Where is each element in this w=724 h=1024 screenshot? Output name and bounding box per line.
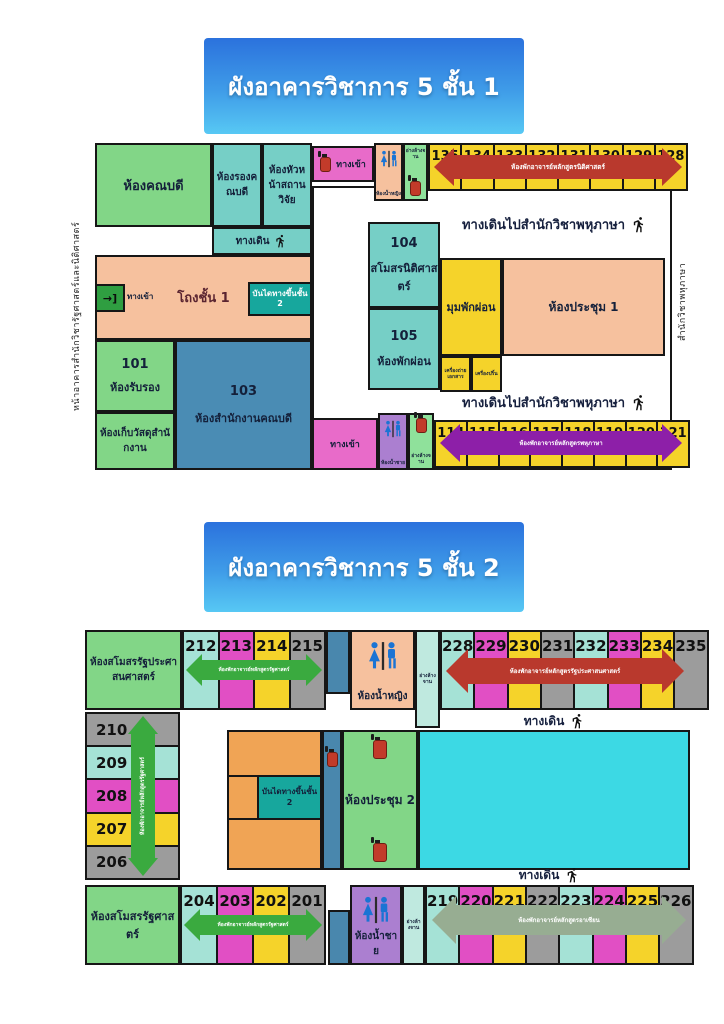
room-storage: ห้องเก็บวัสดุสำนักงาน xyxy=(95,412,175,470)
hall-label: โถงชั้น 1 xyxy=(177,287,229,308)
sink-bottom-label: อ่างล้างจาน xyxy=(410,453,432,466)
room-104: 104 สโมสรนิติศาสตร์ xyxy=(368,222,440,308)
floor2-walk-note-top: ทางเดิน xyxy=(500,712,610,730)
room-105: 105 ห้องพักผ่อน xyxy=(368,308,440,390)
restroom-icon xyxy=(383,419,403,439)
corridor-note-top: ทางเดินไปสำนักวิชาพหุภาษา xyxy=(425,214,685,234)
blue-strip-floor2 xyxy=(322,730,342,870)
toilet-women-floor2-label: ห้องน้ำหญิง xyxy=(358,689,408,704)
toilet-women-label: ห้องน้ำหญิง xyxy=(376,191,401,197)
fire-extinguisher-icon xyxy=(373,843,387,862)
sink-top-label: อ่างล้างจาน xyxy=(405,148,426,161)
room-copier: เครื่องถ่ายเอกสาร xyxy=(440,356,471,392)
walking-person-icon xyxy=(565,867,581,883)
walkway-strip: ทางเดิน xyxy=(212,227,312,255)
hall-entrance-box: →] xyxy=(95,284,125,312)
fire-extinguisher-icon xyxy=(416,418,427,433)
room-research-head-label: ห้องหัวหน้าสถานวิจัย xyxy=(266,163,308,208)
arrow-right-head xyxy=(662,424,682,462)
sink-floor2-top: อ่างล้างจาน xyxy=(415,630,440,728)
arrow-asean-lecturers: ห้องพักอาจารย์หลักสูตรอาเซียน xyxy=(432,905,686,935)
room-105-number: 105 xyxy=(390,329,417,344)
copier-label: เครื่องถ่ายเอกสาร xyxy=(444,368,467,381)
room-club-public-admin: ห้องสโมสรรัฐประศาสนศาสตร์ xyxy=(85,630,182,710)
room-101: 101 ห้องรับรอง xyxy=(95,340,175,412)
arrow-right-head xyxy=(662,896,686,944)
restroom-icon xyxy=(360,895,392,925)
entrance-arrow-icon: →] xyxy=(103,292,117,305)
room-research-head: ห้องหัวหน้าสถานวิจัย xyxy=(262,143,312,227)
arrow-left-head xyxy=(446,649,468,693)
room-number: 207 xyxy=(96,820,127,838)
toilet-men-floor2: ห้องน้ำชาย xyxy=(350,885,402,965)
room-number: 208 xyxy=(96,787,127,805)
room-number: 209 xyxy=(96,754,127,772)
arrow-down-head xyxy=(128,858,158,876)
room-storage-label: ห้องเก็บวัสดุสำนักงาน xyxy=(99,426,171,456)
room-deputy-dean-label: ห้องรองคณบดี xyxy=(216,170,258,200)
arrow-left-head xyxy=(186,654,202,686)
corridor-note-bottom-text: ทางเดินไปสำนักวิชาพหุภาษา xyxy=(462,392,625,413)
arrow-public-admin-label: ห้องพักอาจารย์หลักสูตรรัฐประศาสนศาสตร์ xyxy=(510,666,620,676)
floor1-right-edge-label: สำนักวิชาพหุภาษา xyxy=(676,238,690,366)
room-103: 103 ห้องสำนักงานคณบดี xyxy=(175,340,312,470)
arrow-law-lecturers-label: ห้องพักอาจารย์หลักสูตรนิติศาสตร์ xyxy=(511,162,605,172)
walking-person-icon xyxy=(570,713,586,729)
room-printer: เครื่องปริ้น xyxy=(471,356,502,392)
rest-corner-label: มุมพักผ่อน xyxy=(447,298,496,316)
arrow-polsci-lecturers-top: ห้องพักอาจารย์หลักสูตรรัฐศาสตร์ xyxy=(186,660,322,680)
toilet-men-floor2-label: ห้องน้ำชาย xyxy=(352,929,400,959)
room-dean-label: ห้องคณบดี xyxy=(123,175,183,196)
arrow-law-lecturers: ห้องพักอาจารย์หลักสูตรนิติศาสตร์ xyxy=(434,155,682,179)
arrow-right-head xyxy=(662,148,682,186)
sink-top: อ่างล้างจาน xyxy=(403,143,428,201)
toilet-men-label: ห้องน้ำชาย xyxy=(381,460,405,466)
floor2-walk-note-bottom: ทางเดิน xyxy=(495,866,605,884)
room-101-number: 101 xyxy=(121,357,148,372)
floor2-walk-note-bottom-text: ทางเดิน xyxy=(519,866,560,885)
walkway-label: ทางเดิน xyxy=(236,234,270,249)
arrow-right-head xyxy=(306,654,322,686)
club-public-admin-label: ห้องสโมสรรัฐประศาสนศาสตร์ xyxy=(90,655,177,685)
arrow-public-admin-lecturers: ห้องพักอาจารย์หลักสูตรรัฐประศาสนศาสตร์ xyxy=(446,658,684,684)
room-103-number: 103 xyxy=(230,384,257,399)
room-deputy-dean: ห้องรองคณบดี xyxy=(212,143,262,227)
entrance-bottom: ทางเข้า xyxy=(312,418,378,470)
meeting-2-label: ห้องประชุม 2 xyxy=(345,791,415,810)
corridor-note-bottom: ทางเดินไปสำนักวิชาพหุภาษา xyxy=(430,392,680,412)
walking-person-icon xyxy=(631,216,648,233)
fire-extinguisher-icon xyxy=(410,181,421,196)
entrance-top-label: ทางเข้า xyxy=(336,157,366,171)
printer-label: เครื่องปริ้น xyxy=(475,371,497,377)
corridor-note-top-text: ทางเดินไปสำนักวิชาพหุภาษา xyxy=(462,214,625,235)
fire-extinguisher-icon xyxy=(373,740,387,759)
arrow-polsci-lecturers-vertical: ห้องพักอาจารย์หลักสูตรรัฐศาสตร์ xyxy=(131,716,155,876)
arrow-left-head xyxy=(440,424,460,462)
arrow-multilingual-lecturers: ห้องพักอาจารย์หลักสูตรพหุภาษา xyxy=(440,431,682,455)
room-number: 210 xyxy=(96,721,127,739)
room-104-number: 104 xyxy=(390,236,417,251)
stairs-label-floor2: บันไดทางขึ้นชั้น2 xyxy=(260,787,319,808)
blue-box-bottom xyxy=(328,910,350,965)
floor-plan-page: ผังอาคารวิชาการ 5 ชั้น 1 หน้าอาคารสำนักว… xyxy=(0,0,724,1024)
floor1-left-edge-label: หน้าอาคารสำนักวิชารัฐศาสตร์และนิติศาสตร์ xyxy=(70,180,86,452)
open-area-floor2 xyxy=(418,730,690,870)
room-number: 206 xyxy=(96,853,127,871)
room-meeting-2: ห้องประชุม 2 xyxy=(342,730,418,870)
room-rest-corner: มุมพักผ่อน xyxy=(440,258,502,356)
floor2-walk-note-top-text: ทางเดิน xyxy=(524,712,565,731)
fire-extinguisher-icon xyxy=(320,157,331,172)
arrow-multilingual-label: ห้องพักอาจารย์หลักสูตรพหุภาษา xyxy=(519,438,602,448)
stairs-label-floor1: บันไดทางขึ้นชั้น2 xyxy=(251,289,309,310)
floor2-title-banner: ผังอาคารวิชาการ 5 ชั้น 2 xyxy=(204,522,524,612)
restroom-icon xyxy=(366,640,400,672)
room-dean: ห้องคณบดี xyxy=(95,143,212,227)
toilet-men-floor1: ห้องน้ำชาย xyxy=(378,413,408,470)
arrow-up-head xyxy=(128,716,158,734)
restroom-icon xyxy=(379,149,399,169)
arrow-polsci-bottom-label: ห้องพักอาจารย์หลักสูตรรัฐศาสตร์ xyxy=(217,921,288,929)
sink-bottom: อ่างล้างจาน xyxy=(408,413,434,470)
hall-entrance-label: ทางเข้า xyxy=(127,292,153,302)
room-103-label: ห้องสำนักงานคณบดี xyxy=(195,409,292,427)
arrow-polsci-top-label: ห้องพักอาจารย์หลักสูตรรัฐศาสตร์ xyxy=(218,666,289,674)
room-stairs-floor2: บันไดทางขึ้นชั้น2 xyxy=(257,775,322,820)
room-105-label: ห้องพักผ่อน xyxy=(377,352,431,370)
arrow-asean-label: ห้องพักอาจารย์หลักสูตรอาเซียน xyxy=(518,915,599,925)
sink-floor2-bottom-label: อ่างล้างจาน xyxy=(406,919,421,932)
room-104-label: สโมสรนิติศาสตร์ xyxy=(370,259,438,295)
sink-floor2-bottom: อ่างล้างจาน xyxy=(402,885,425,965)
arrow-polsci-vertical-label: ห้องพักอาจารย์หลักสูตรรัฐศาสตร์ xyxy=(139,757,147,835)
floor1-title-banner: ผังอาคารวิชาการ 5 ชั้น 1 xyxy=(204,38,524,134)
fire-extinguisher-icon xyxy=(327,752,338,767)
arrow-polsci-lecturers-bottom: ห้องพักอาจารย์หลักสูตรรัฐศาสตร์ xyxy=(184,915,322,935)
walking-person-icon xyxy=(631,394,648,411)
meeting-1-label: ห้องประชุม 1 xyxy=(548,298,618,317)
toilet-women-floor2: ห้องน้ำหญิง xyxy=(350,630,415,710)
floor2-title: ผังอาคารวิชาการ 5 ชั้น 2 xyxy=(228,548,499,587)
room-101-label: ห้องรับรอง xyxy=(110,378,160,396)
entrance-top: ทางเข้า xyxy=(312,146,374,182)
room-club-polsci: ห้องสโมสรรัฐศาสตร์ xyxy=(85,885,180,965)
room-meeting-1: ห้องประชุม 1 xyxy=(502,258,665,356)
blue-box-top xyxy=(326,630,350,694)
floor1-title: ผังอาคารวิชาการ 5 ชั้น 1 xyxy=(228,67,499,106)
toilet-women-floor1: ห้องน้ำหญิง xyxy=(374,143,403,201)
arrow-left-head xyxy=(432,896,456,944)
arrow-left-head xyxy=(184,909,200,941)
arrow-right-head xyxy=(306,909,322,941)
club-polsci-label: ห้องสโมสรรัฐศาสตร์ xyxy=(90,907,175,943)
arrow-left-head xyxy=(434,148,454,186)
room-stairs-floor1: บันไดทางขึ้นชั้น2 xyxy=(248,282,312,316)
arrow-right-head xyxy=(662,649,684,693)
entrance-bottom-label: ทางเข้า xyxy=(330,437,360,451)
walking-person-icon xyxy=(274,234,288,248)
sink-floor2-top-label: อ่างล้างจาน xyxy=(419,673,436,686)
